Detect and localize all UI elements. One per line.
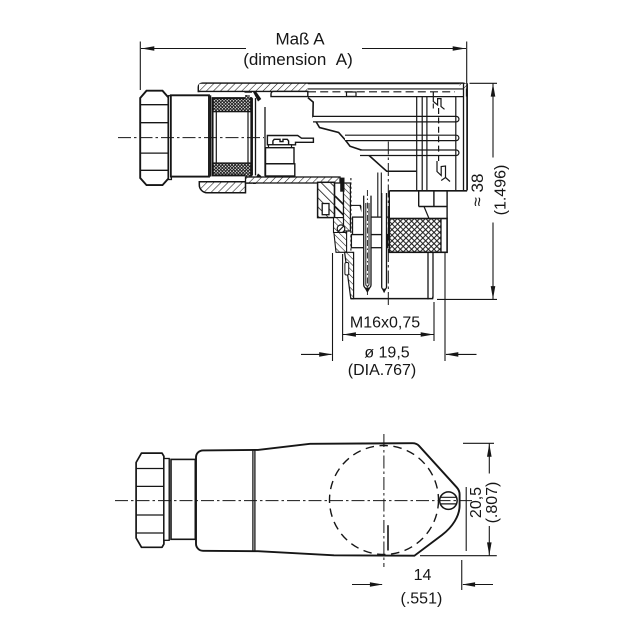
svg-text:(.807): (.807) (484, 482, 501, 524)
svg-text:≈ 38: ≈ 38 (468, 174, 487, 207)
svg-text:ø 19,5: ø 19,5 (364, 344, 409, 361)
svg-text:Maß A: Maß A (275, 30, 325, 49)
svg-text:20,5: 20,5 (468, 487, 485, 518)
svg-text:(DIA.767): (DIA.767) (348, 362, 416, 379)
svg-text:(dimension A): (dimension A) (243, 50, 353, 69)
svg-text:(1.496): (1.496) (492, 165, 509, 216)
svg-text:14: 14 (414, 567, 432, 584)
svg-text:(.551): (.551) (401, 591, 443, 608)
svg-text:M16x0,75: M16x0,75 (350, 315, 420, 332)
